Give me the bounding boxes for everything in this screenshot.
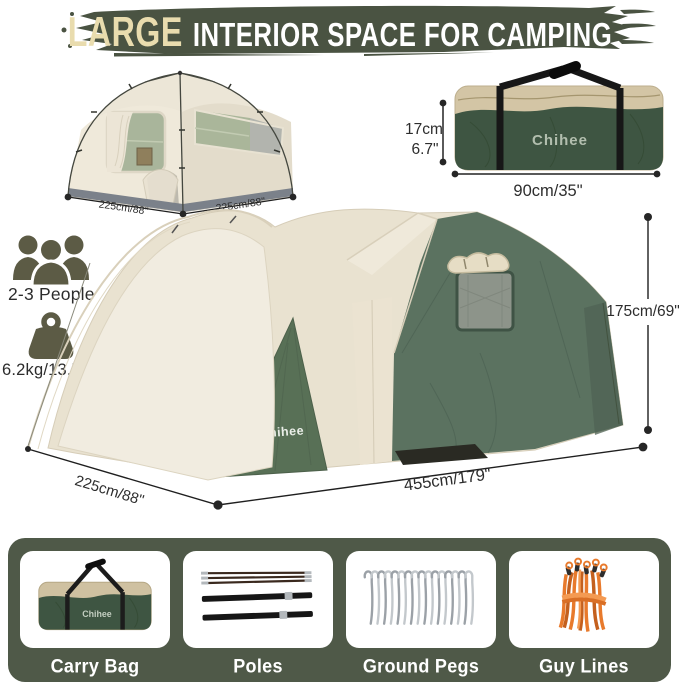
title-rest: INTERIOR SPACE FOR CAMPING: [193, 17, 612, 55]
kit-label-poles: Poles: [233, 655, 283, 678]
main-tent-illustration: Chihee 225cm/88" 455cm/179" 175cm/69": [20, 203, 679, 524]
kit-panel: Chihee Carry Bag: [8, 538, 671, 682]
bag-height-in: 6.7": [411, 141, 438, 158]
ground-pegs-illustration: [352, 556, 490, 644]
guy-lines-illustration: [515, 556, 653, 644]
kit-bag-brand-text: Chihee: [82, 608, 112, 618]
kit-item-carry-bag: Chihee Carry Bag: [20, 551, 170, 682]
header-banner: LARGE INTERIOR SPACE FOR CAMPING: [24, 0, 656, 58]
kit-label-ground-pegs: Ground Pegs: [363, 655, 479, 678]
poles-card: [183, 551, 333, 648]
bag-brand-text: Chihee: [532, 132, 588, 149]
small-tent-illustration: 225cm/88" 225cm/88": [45, 60, 315, 225]
page-title: LARGE INTERIOR SPACE FOR CAMPING: [49, 0, 630, 63]
title-highlight: LARGE: [68, 10, 183, 57]
guy-lines-card: [509, 551, 659, 648]
tent-window: [448, 253, 513, 330]
kit-item-guy-lines: Guy Lines: [509, 551, 659, 682]
tent-width-label: 455cm/179": [403, 465, 492, 494]
kit-label-guy-lines: Guy Lines: [539, 655, 629, 678]
bag-height-cm: 17cm: [405, 121, 443, 138]
tent-depth-label: 225cm/88": [73, 472, 146, 509]
tent-height-label: 175cm/69": [606, 303, 679, 320]
bag-width-label: 90cm/35": [513, 182, 582, 200]
bag-width-dimension: 90cm/35": [452, 171, 661, 200]
kit-label-carry-bag: Carry Bag: [51, 655, 140, 678]
carry-bag-card: Chihee: [20, 551, 170, 648]
kit-item-ground-pegs: Ground Pegs: [346, 551, 496, 682]
product-infographic: LARGE INTERIOR SPACE FOR CAMPING: [0, 0, 679, 684]
bag-height-dimension: 17cm 6.7": [405, 100, 446, 166]
carry-bag-mini-illustration: Chihee: [26, 556, 164, 644]
carry-bag-illustration: Chihee 17cm 6.7" 90cm/35": [400, 62, 679, 204]
poles-illustration: [189, 556, 327, 644]
kit-item-poles: Poles: [183, 551, 333, 682]
ground-pegs-card: [346, 551, 496, 648]
